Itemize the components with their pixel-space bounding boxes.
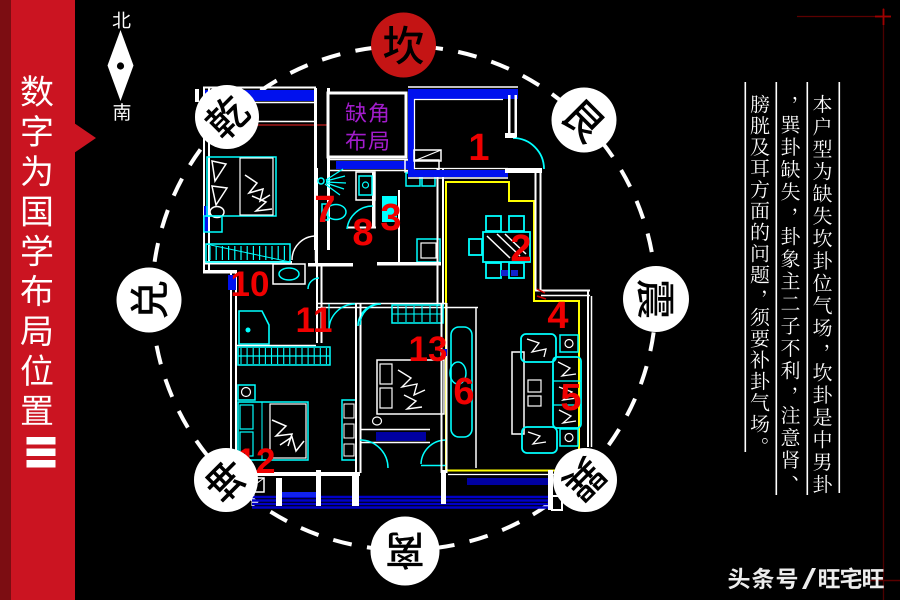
svg-text:6: 6 [453, 371, 474, 413]
svg-text:5: 5 [560, 377, 581, 419]
svg-text:7: 7 [314, 189, 335, 231]
svg-text:8: 8 [352, 212, 373, 254]
svg-text:10: 10 [231, 265, 270, 304]
svg-text:13: 13 [409, 330, 448, 369]
svg-text:3: 3 [380, 197, 401, 239]
svg-text:4: 4 [547, 295, 568, 337]
svg-text:2: 2 [510, 228, 531, 270]
svg-text:1: 1 [468, 127, 489, 169]
svg-text:11: 11 [296, 301, 333, 340]
